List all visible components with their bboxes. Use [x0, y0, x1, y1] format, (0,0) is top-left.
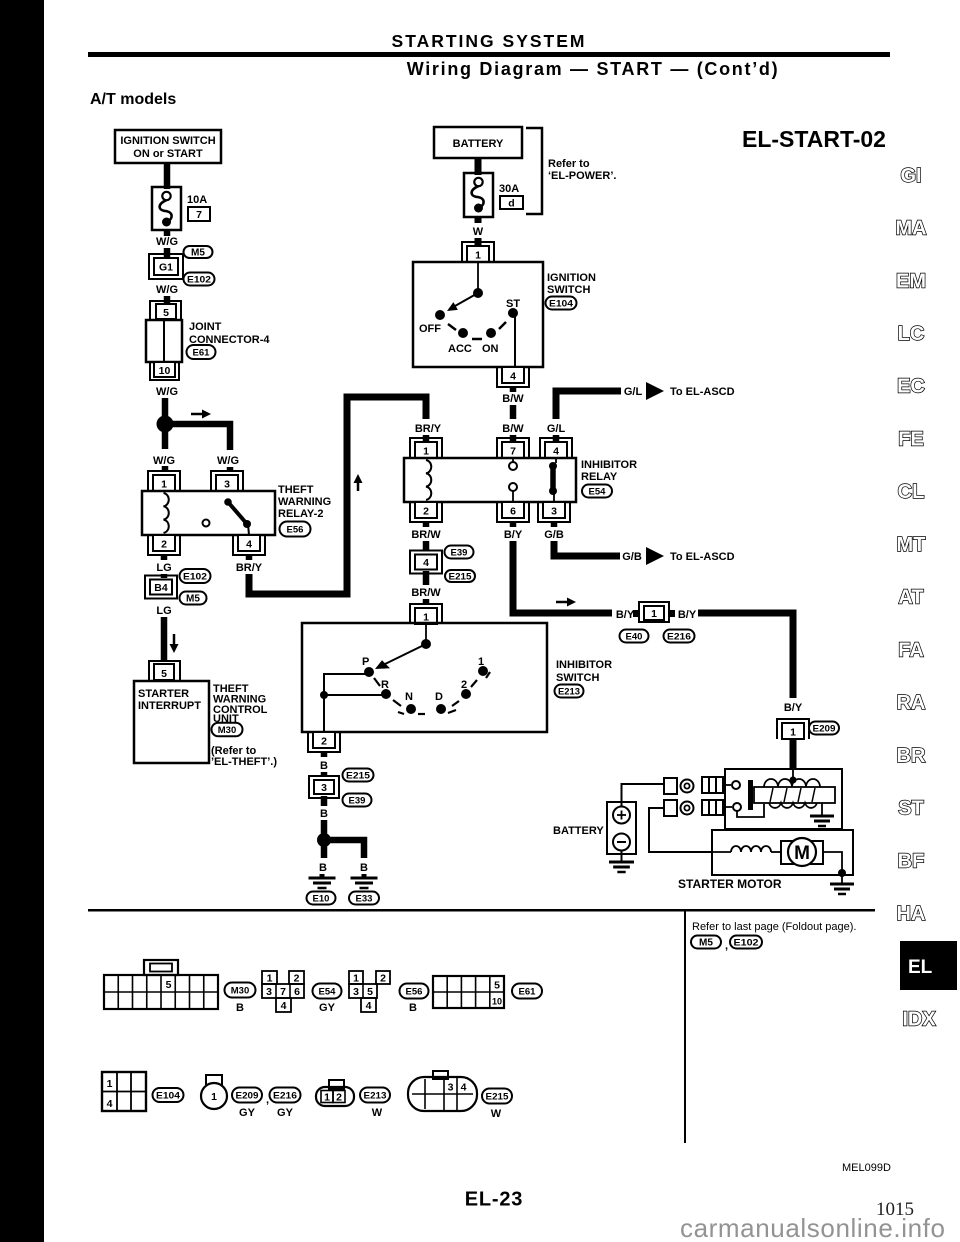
svg-text:E213: E213 [558, 687, 580, 697]
svg-text:2: 2 [423, 506, 429, 518]
svg-text:2: 2 [321, 736, 327, 748]
svg-text:A/T models: A/T models [90, 91, 176, 108]
svg-text:d: d [508, 198, 514, 210]
svg-text:W: W [491, 1108, 502, 1120]
svg-text:1: 1 [324, 1092, 330, 1104]
svg-text:E215: E215 [449, 572, 472, 582]
svg-text:W/G: W/G [156, 386, 178, 398]
svg-text:R: R [381, 679, 389, 691]
svg-text:5: 5 [494, 980, 500, 992]
svg-text:M30: M30 [218, 725, 236, 736]
svg-text:RELAY: RELAY [581, 471, 618, 483]
svg-text:W/G: W/G [156, 236, 178, 248]
svg-text:5: 5 [163, 307, 169, 319]
svg-text:2: 2 [461, 679, 467, 691]
svg-text:6: 6 [510, 506, 516, 518]
svg-text:5: 5 [367, 986, 373, 998]
svg-text:P: P [362, 656, 369, 668]
svg-text:1: 1 [267, 973, 273, 985]
svg-text:5: 5 [161, 668, 167, 680]
svg-text:IDX: IDX [902, 1009, 936, 1031]
svg-text:2: 2 [161, 539, 167, 551]
svg-text:MT: MT [897, 534, 926, 556]
svg-text:B: B [320, 760, 328, 772]
svg-text:1: 1 [651, 608, 657, 620]
svg-text:4: 4 [366, 1000, 372, 1012]
svg-text:Refer to: Refer to [548, 158, 590, 170]
svg-text:BATTERY: BATTERY [553, 825, 604, 837]
svg-text:LG: LG [156, 562, 171, 574]
svg-text:1: 1 [107, 1078, 113, 1090]
svg-text:B/Y: B/Y [784, 702, 803, 714]
svg-text:G/B: G/B [544, 529, 564, 541]
svg-text:B: B [320, 808, 328, 820]
svg-text:E104: E104 [549, 299, 573, 309]
svg-text:E215: E215 [486, 1092, 509, 1102]
svg-text:GY: GY [277, 1107, 294, 1119]
svg-text:7: 7 [510, 446, 516, 458]
svg-text:EM: EM [896, 270, 926, 292]
svg-text:E216: E216 [273, 1091, 297, 1101]
svg-text:10A: 10A [187, 194, 207, 206]
svg-text:B/Y: B/Y [616, 609, 635, 621]
svg-text:’EL-THEFT’.): ’EL-THEFT’.) [211, 756, 277, 768]
svg-text:2: 2 [294, 973, 300, 985]
svg-text:4: 4 [461, 1082, 467, 1094]
svg-text:MEL099D: MEL099D [842, 1162, 891, 1174]
svg-text:E61: E61 [519, 987, 537, 998]
svg-text:IGNITION: IGNITION [547, 272, 596, 284]
svg-text:M5: M5 [191, 248, 205, 259]
svg-text:ST: ST [898, 798, 924, 820]
svg-text:B/Y: B/Y [504, 529, 523, 541]
svg-text:7: 7 [280, 986, 286, 998]
svg-text:B4: B4 [154, 582, 168, 594]
svg-text:B: B [319, 862, 327, 874]
svg-text:W: W [473, 226, 484, 238]
svg-text:4: 4 [107, 1098, 113, 1110]
svg-text:ON: ON [482, 343, 499, 355]
svg-text:E56: E56 [406, 987, 423, 998]
svg-text:IGNITION SWITCH: IGNITION SWITCH [120, 135, 215, 147]
svg-text:E33: E33 [356, 894, 373, 905]
svg-text:BF: BF [898, 850, 925, 872]
svg-text:EL: EL [908, 957, 933, 978]
svg-text:1: 1 [161, 479, 167, 491]
svg-text:E209: E209 [236, 1091, 259, 1101]
svg-text:D: D [435, 691, 443, 703]
svg-text:E54: E54 [319, 987, 337, 998]
svg-text:E54: E54 [589, 487, 607, 498]
svg-text:M30: M30 [231, 986, 249, 997]
svg-text:STARTER MOTOR: STARTER MOTOR [678, 877, 782, 891]
svg-text:WARNING: WARNING [278, 496, 331, 508]
svg-text:1: 1 [353, 973, 359, 985]
svg-text:ST: ST [506, 298, 520, 310]
svg-text:4: 4 [510, 371, 516, 383]
svg-text:10: 10 [492, 997, 502, 1007]
svg-text:B/W: B/W [502, 393, 524, 405]
svg-text:E102: E102 [187, 275, 211, 285]
svg-text:4: 4 [423, 557, 429, 569]
svg-text:1: 1 [475, 250, 481, 262]
svg-text:1: 1 [478, 656, 484, 668]
svg-text:E216: E216 [667, 632, 691, 642]
svg-text:3: 3 [266, 986, 272, 998]
svg-text:6: 6 [294, 986, 300, 998]
svg-text:M5: M5 [186, 594, 200, 605]
svg-text:5: 5 [166, 979, 172, 991]
svg-text:FA: FA [898, 639, 924, 661]
svg-text:CL: CL [898, 481, 925, 503]
svg-text:ON or START: ON or START [133, 148, 203, 160]
svg-text:E39: E39 [349, 796, 366, 807]
svg-text:10: 10 [159, 365, 171, 377]
svg-text:G1: G1 [159, 262, 173, 274]
svg-text:E10: E10 [313, 894, 330, 905]
svg-text:RELAY-2: RELAY-2 [278, 508, 323, 520]
svg-text:4: 4 [246, 539, 252, 551]
svg-text:‘EL-POWER’.: ‘EL-POWER’. [548, 170, 616, 182]
svg-text:30A: 30A [499, 183, 519, 195]
svg-text:GI: GI [900, 165, 921, 187]
svg-text:Wiring Diagram — START — (Cont: Wiring Diagram — START — (Cont’d) [407, 59, 780, 79]
svg-text:INHIBITOR: INHIBITOR [581, 459, 637, 471]
svg-text:7: 7 [196, 209, 202, 221]
svg-text:BR/Y: BR/Y [415, 423, 442, 435]
svg-text:M: M [794, 843, 810, 864]
svg-text:G/L: G/L [624, 386, 643, 398]
svg-text:B: B [236, 1002, 244, 1014]
svg-text:4: 4 [281, 1000, 287, 1012]
svg-text:JOINT: JOINT [189, 321, 222, 333]
svg-text:STARTING SYSTEM: STARTING SYSTEM [392, 31, 587, 51]
svg-text:LG: LG [156, 605, 171, 617]
svg-text:E40: E40 [626, 632, 643, 643]
svg-text:G/B: G/B [622, 551, 642, 563]
svg-text:4: 4 [553, 446, 559, 458]
svg-text:E209: E209 [813, 724, 836, 734]
svg-text:AT: AT [898, 587, 923, 609]
svg-text:OFF: OFF [419, 323, 441, 335]
svg-text:E102: E102 [734, 938, 759, 948]
svg-text:EL-START-02: EL-START-02 [742, 126, 886, 152]
svg-text:E104: E104 [156, 1091, 180, 1101]
svg-text:BR/Y: BR/Y [236, 562, 263, 574]
svg-text:E215: E215 [346, 771, 370, 781]
svg-text:To EL-ASCD: To EL-ASCD [670, 386, 735, 398]
svg-text:N: N [405, 691, 413, 703]
svg-text:W/G: W/G [156, 284, 178, 296]
svg-text:E102: E102 [183, 572, 207, 582]
svg-text:1: 1 [211, 1091, 217, 1103]
svg-text:W/G: W/G [217, 455, 239, 467]
svg-text:2: 2 [336, 1092, 342, 1104]
svg-text:RA: RA [897, 692, 926, 714]
svg-text:1: 1 [423, 612, 429, 624]
svg-text:B/W: B/W [502, 423, 524, 435]
svg-text:BR/W: BR/W [411, 587, 441, 599]
svg-text:B/Y: B/Y [678, 609, 697, 621]
svg-text:3: 3 [353, 986, 359, 998]
svg-text:1: 1 [423, 446, 429, 458]
svg-text:BATTERY: BATTERY [453, 138, 504, 150]
svg-text:1: 1 [790, 727, 796, 739]
svg-text:3: 3 [224, 479, 230, 491]
svg-text:EC: EC [897, 376, 925, 398]
svg-text:ACC: ACC [448, 343, 472, 355]
svg-text:HA: HA [897, 903, 926, 925]
svg-text:INTERRUPT: INTERRUPT [138, 700, 201, 712]
svg-text:W: W [372, 1107, 383, 1119]
svg-text:W/G: W/G [153, 455, 175, 467]
svg-text:THEFT: THEFT [278, 484, 314, 496]
svg-text:B: B [409, 1002, 417, 1014]
svg-text:EL-23: EL-23 [465, 1189, 523, 1211]
svg-text:GY: GY [319, 1002, 336, 1014]
svg-text:3: 3 [448, 1082, 454, 1094]
svg-text:M5: M5 [699, 938, 713, 949]
svg-text:carmanualsonline.info: carmanualsonline.info [680, 1213, 946, 1242]
svg-text:G/L: G/L [547, 423, 566, 435]
svg-text:E39: E39 [451, 548, 468, 559]
svg-text:LC: LC [898, 323, 925, 345]
svg-text:B: B [360, 862, 368, 874]
svg-text:FE: FE [898, 428, 924, 450]
svg-text:3: 3 [321, 782, 327, 794]
svg-text:STARTER: STARTER [138, 688, 189, 700]
svg-text:SWITCH: SWITCH [556, 672, 599, 684]
svg-text:2: 2 [380, 973, 386, 985]
svg-text:E56: E56 [287, 525, 304, 536]
svg-text:E61: E61 [193, 348, 211, 359]
svg-text:To EL-ASCD: To EL-ASCD [670, 551, 735, 563]
svg-text:,: , [725, 940, 728, 952]
svg-text:INHIBITOR: INHIBITOR [556, 659, 612, 671]
svg-text:3: 3 [551, 506, 557, 518]
svg-text:MA: MA [895, 218, 926, 240]
svg-text:E213: E213 [364, 1091, 387, 1101]
svg-text:BR: BR [897, 745, 926, 767]
svg-text:BR/W: BR/W [411, 529, 441, 541]
svg-text:GY: GY [239, 1107, 256, 1119]
svg-text:Refer to last page (Foldout pa: Refer to last page (Foldout page). [692, 921, 856, 933]
svg-text:SWITCH: SWITCH [547, 284, 590, 296]
